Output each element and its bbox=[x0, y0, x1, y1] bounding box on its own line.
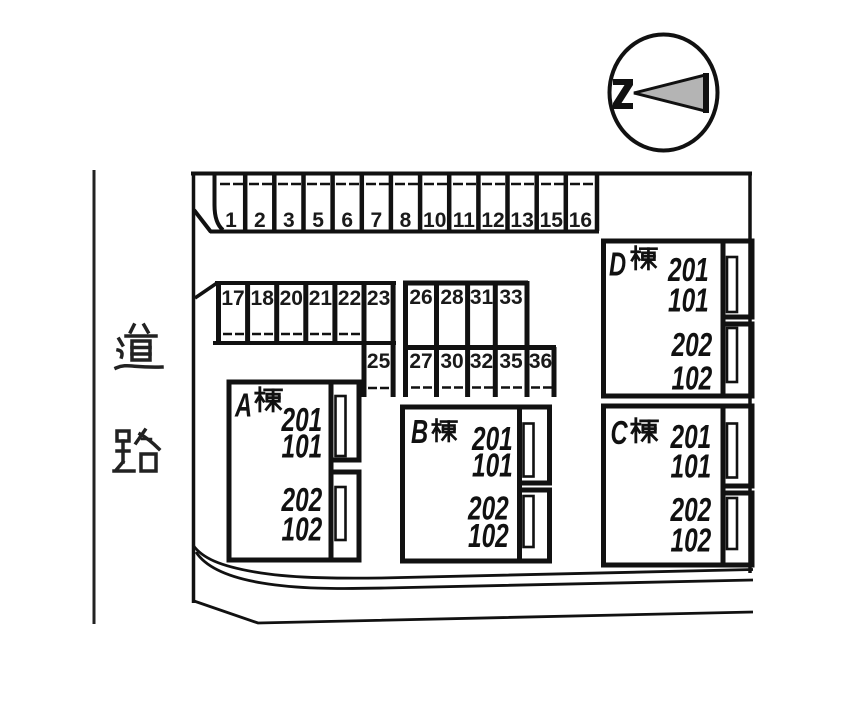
svg-text:B: B bbox=[411, 414, 428, 451]
svg-text:101: 101 bbox=[668, 283, 709, 319]
svg-text:28: 28 bbox=[440, 286, 464, 309]
svg-text:26: 26 bbox=[409, 286, 432, 309]
svg-text:25: 25 bbox=[367, 350, 391, 373]
svg-text:23: 23 bbox=[367, 287, 390, 310]
svg-text:27: 27 bbox=[409, 350, 432, 373]
svg-text:22: 22 bbox=[338, 287, 361, 310]
svg-text:101: 101 bbox=[282, 429, 323, 465]
svg-text:15: 15 bbox=[540, 209, 564, 232]
svg-text:21: 21 bbox=[309, 287, 333, 310]
svg-text:30: 30 bbox=[440, 350, 463, 373]
svg-text:A: A bbox=[234, 388, 252, 425]
svg-text:C: C bbox=[611, 415, 629, 452]
svg-text:16: 16 bbox=[569, 209, 592, 232]
svg-text:36: 36 bbox=[529, 350, 552, 373]
svg-text:102: 102 bbox=[282, 512, 323, 548]
svg-text:6: 6 bbox=[341, 209, 353, 232]
svg-text:18: 18 bbox=[251, 287, 275, 310]
svg-text:10: 10 bbox=[423, 209, 446, 232]
svg-text:2: 2 bbox=[254, 209, 266, 232]
svg-text:7: 7 bbox=[371, 209, 383, 232]
svg-text:D: D bbox=[609, 247, 626, 284]
svg-text:32: 32 bbox=[470, 350, 493, 373]
svg-text:17: 17 bbox=[221, 287, 244, 310]
svg-text:8: 8 bbox=[400, 209, 412, 232]
svg-text:13: 13 bbox=[510, 209, 533, 232]
svg-text:102: 102 bbox=[468, 519, 509, 555]
svg-text:31: 31 bbox=[470, 286, 494, 309]
svg-text:11: 11 bbox=[453, 209, 476, 232]
svg-text:20: 20 bbox=[280, 287, 303, 310]
svg-text:102: 102 bbox=[671, 523, 712, 559]
svg-text:35: 35 bbox=[499, 350, 523, 373]
svg-text:202: 202 bbox=[671, 328, 713, 364]
svg-text:1: 1 bbox=[225, 209, 237, 232]
svg-text:3: 3 bbox=[283, 209, 295, 232]
svg-text:101: 101 bbox=[671, 449, 712, 485]
svg-text:12: 12 bbox=[481, 209, 504, 232]
svg-text:101: 101 bbox=[472, 448, 513, 484]
svg-text:33: 33 bbox=[499, 286, 522, 309]
svg-text:5: 5 bbox=[312, 209, 324, 232]
svg-text:102: 102 bbox=[672, 361, 713, 397]
